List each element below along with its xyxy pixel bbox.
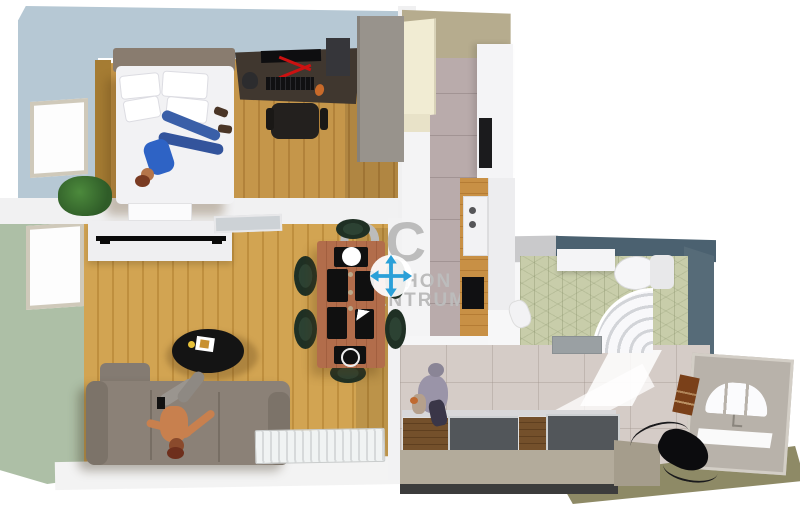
wardrobe-front: [400, 450, 618, 486]
decor-ball: [188, 341, 195, 348]
tv: [96, 236, 226, 241]
person-head: [428, 363, 444, 377]
bedroom-wardrobe: [357, 16, 404, 162]
shelf-box: [128, 203, 192, 221]
dining-chair: [336, 219, 370, 239]
candle-holder: [348, 272, 353, 277]
bathroom-vanity: [557, 249, 615, 271]
sink-tap: [469, 221, 476, 228]
bed-pillow: [161, 70, 209, 99]
office-chair-armrest: [320, 108, 328, 130]
door-glass-slat: [696, 428, 772, 448]
cooktop: [462, 277, 484, 309]
kitchen-cabinet-cream: [404, 114, 430, 132]
desk-keyboard: [266, 77, 314, 90]
bedroom-window: [30, 98, 88, 178]
washing-machine: [552, 336, 602, 354]
move-tool-icon[interactable]: [368, 253, 414, 299]
desk-headphones: [242, 72, 258, 89]
wardrobe-base: [400, 484, 618, 494]
placemat: [327, 269, 348, 302]
tv-stand-foot: [212, 241, 222, 244]
candle-holder: [348, 290, 353, 295]
living-room-window: [26, 222, 84, 310]
tv-stand-foot: [100, 241, 110, 244]
door-arch-window: [705, 381, 769, 417]
dinner-plate: [342, 247, 361, 266]
radiator: [255, 428, 386, 464]
dining-chair: [294, 309, 317, 349]
floorplan-3d-view: OC OTTHON CENTRUM: [0, 0, 800, 511]
wardrobe-door-grey: [448, 416, 522, 454]
kitchen-cabinet-white: [488, 178, 515, 310]
person-hair: [167, 447, 184, 459]
dining-chair: [385, 309, 406, 349]
kitchen-cabinet-cream: [404, 18, 436, 117]
dining-chair: [294, 256, 317, 296]
door-handle: [732, 415, 743, 428]
wardrobe-door-wood: [518, 416, 548, 451]
phone: [157, 397, 165, 409]
person-hair: [135, 175, 150, 187]
sink-tap: [469, 207, 476, 214]
open-door-panel: [214, 214, 283, 233]
office-chair: [271, 103, 319, 139]
dinner-plate: [341, 348, 360, 367]
toilet-tank: [650, 255, 674, 289]
move-cross-arrows-icon: [368, 253, 414, 299]
person-shoe: [410, 397, 418, 404]
magazine-picture: [199, 339, 209, 348]
oven: [479, 118, 492, 168]
sofa-cushion-seam: [218, 392, 220, 462]
candle-holder: [348, 306, 353, 311]
sofa-armrest: [86, 381, 108, 465]
placemat: [327, 307, 347, 339]
potted-plant: [58, 176, 112, 216]
wardrobe-door-grey: [546, 414, 620, 453]
office-chair-armrest: [266, 108, 274, 130]
pc-tower: [326, 38, 350, 76]
